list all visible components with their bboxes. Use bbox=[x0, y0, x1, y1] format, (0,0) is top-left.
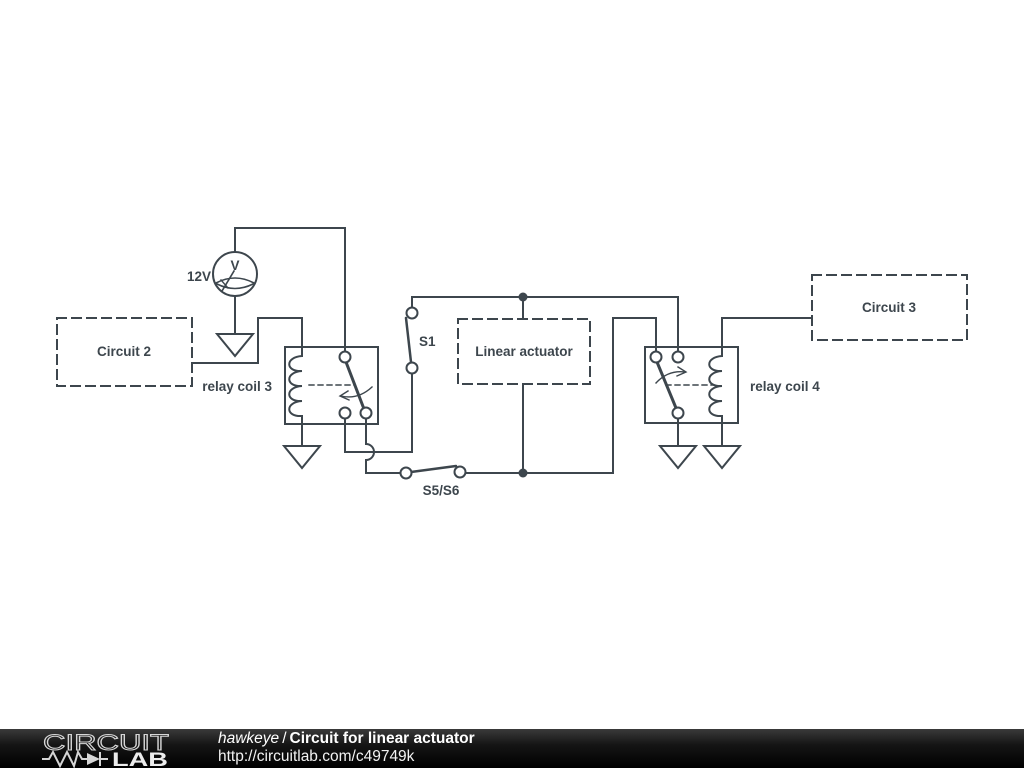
footer-text-block: hawkeye/Circuit for linear actuator http… bbox=[218, 730, 475, 765]
relay3-terminal-common bbox=[340, 352, 351, 363]
relay4-switch-blade bbox=[657, 362, 676, 408]
author-title-separator: / bbox=[279, 730, 289, 747]
relay-coil-4: relay coil 4 bbox=[645, 347, 820, 424]
s5s6-blade bbox=[411, 466, 456, 472]
wire-relay4-coil-to-circuit3 bbox=[722, 318, 810, 347]
switch-s5s6: S5/S6 bbox=[401, 466, 466, 498]
logo-lab-text: LAB bbox=[112, 750, 168, 768]
circuit3-block: Circuit 3 bbox=[812, 275, 967, 340]
ground-icon bbox=[284, 446, 320, 468]
relay3-terminal-nc bbox=[340, 408, 351, 419]
voltage-source-12v: V 12V bbox=[187, 252, 257, 296]
linear-actuator-block: Linear actuator bbox=[458, 319, 590, 384]
s1-terminal-top bbox=[407, 308, 418, 319]
relay3-arrowhead bbox=[340, 391, 349, 400]
relay3-terminal-no bbox=[361, 408, 372, 419]
circuit2-block: Circuit 2 bbox=[57, 318, 192, 386]
circuit2-label: Circuit 2 bbox=[97, 344, 151, 359]
voltage-source-value: 12V bbox=[187, 269, 211, 284]
ground-icon bbox=[660, 446, 696, 468]
s1-blade bbox=[406, 318, 411, 362]
wire-s1-top-rail bbox=[412, 297, 678, 351]
footer-url-line: http://circuitlab.com/c49749k bbox=[218, 748, 475, 765]
wire-relay3-to-s5s6 bbox=[366, 419, 400, 473]
junction-dot bbox=[519, 469, 528, 478]
wire-s5s6-to-relay4 bbox=[466, 318, 656, 473]
schematic-title: Circuit for linear actuator bbox=[290, 730, 475, 747]
s1-label: S1 bbox=[419, 334, 436, 349]
relay4-label: relay coil 4 bbox=[750, 379, 820, 394]
relay4-terminal-no bbox=[651, 352, 662, 363]
s5s6-terminal-left bbox=[401, 468, 412, 479]
s5s6-label: S5/S6 bbox=[423, 483, 460, 498]
relay3-label: relay coil 3 bbox=[202, 379, 272, 394]
s1-terminal-bottom bbox=[407, 363, 418, 374]
circuitlab-logo: CIRCUIT LAB bbox=[42, 731, 174, 768]
author-name[interactable]: hawkeye bbox=[218, 730, 279, 747]
linear-actuator-label: Linear actuator bbox=[475, 344, 573, 359]
schematic-url-link[interactable]: http://circuitlab.com/c49749k bbox=[218, 748, 414, 765]
circuit3-label: Circuit 3 bbox=[862, 300, 917, 315]
footer-title-line: hawkeye/Circuit for linear actuator bbox=[218, 730, 475, 748]
ground-icon bbox=[217, 334, 253, 356]
s5s6-terminal-right bbox=[455, 467, 466, 478]
relay3-coil-icon bbox=[289, 347, 302, 424]
relay4-terminal-bottom bbox=[673, 408, 684, 419]
ground-icon bbox=[704, 446, 740, 468]
switch-s1: S1 bbox=[406, 308, 436, 374]
circuitlab-schematic-page: V 12V Circuit 2 Linear actuator Circuit … bbox=[0, 0, 1024, 768]
relay-coil-3: relay coil 3 bbox=[202, 347, 378, 424]
junction-dot bbox=[519, 293, 528, 302]
schematic-canvas: V 12V Circuit 2 Linear actuator Circuit … bbox=[0, 0, 1024, 729]
relay4-terminal-common bbox=[673, 352, 684, 363]
